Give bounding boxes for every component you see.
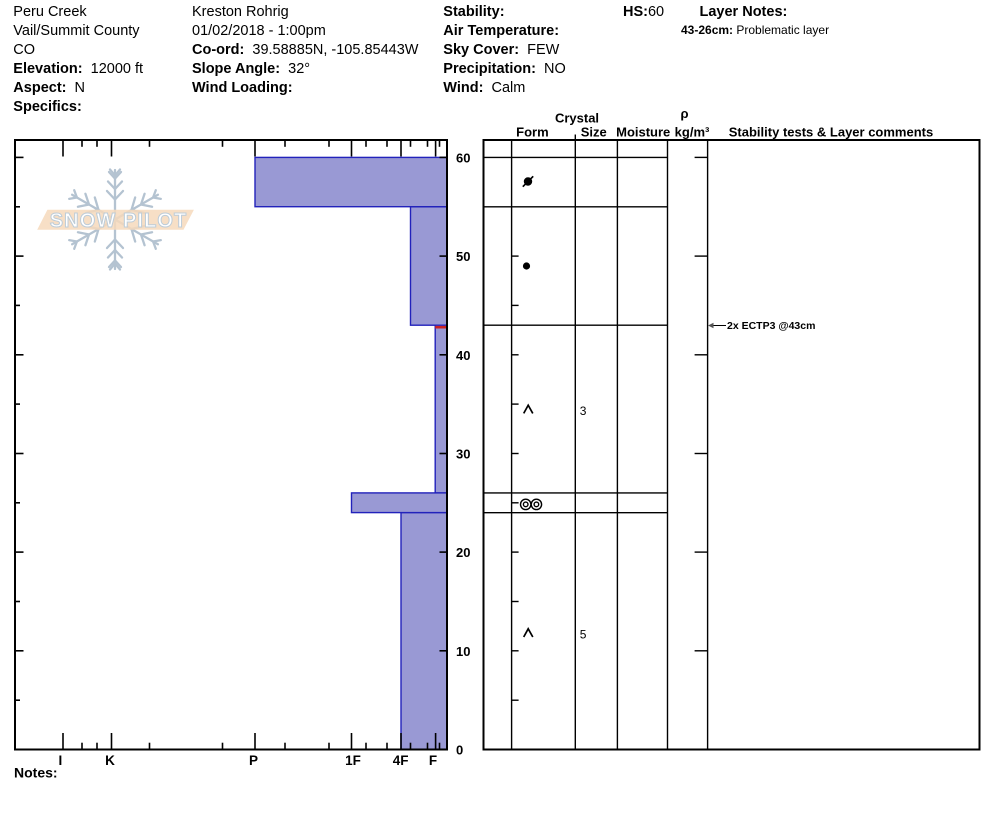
svg-text:4F: 4F (393, 753, 409, 768)
svg-text:2x ECTP3 @43cm: 2x ECTP3 @43cm (727, 320, 815, 332)
svg-text:60: 60 (456, 151, 470, 166)
svg-text:Notes:: Notes: (14, 764, 58, 780)
svg-text:F: F (429, 753, 437, 768)
svg-text:I: I (59, 753, 63, 768)
svg-text:K: K (105, 753, 115, 768)
svg-text:P: P (249, 753, 258, 768)
svg-text:Size: Size (581, 125, 607, 140)
svg-text:kg/m³: kg/m³ (675, 125, 710, 140)
svg-text:3: 3 (580, 404, 587, 418)
svg-text:SNOW PILOT: SNOW PILOT (50, 210, 188, 232)
svg-text:0: 0 (456, 743, 463, 758)
svg-text:Stability tests & Layer commen: Stability tests & Layer comments (729, 125, 933, 140)
svg-text:Moisture: Moisture (616, 125, 670, 140)
svg-text:ρ: ρ (680, 106, 688, 121)
svg-text:50: 50 (456, 249, 470, 264)
svg-text:10: 10 (456, 644, 470, 659)
svg-text:5: 5 (580, 627, 587, 641)
svg-text:40: 40 (456, 348, 470, 363)
svg-text:20: 20 (456, 545, 470, 560)
svg-text:30: 30 (456, 447, 470, 462)
svg-text:Crystal: Crystal (555, 110, 599, 125)
svg-text:1F: 1F (345, 753, 361, 768)
svg-text:Form: Form (516, 125, 549, 140)
